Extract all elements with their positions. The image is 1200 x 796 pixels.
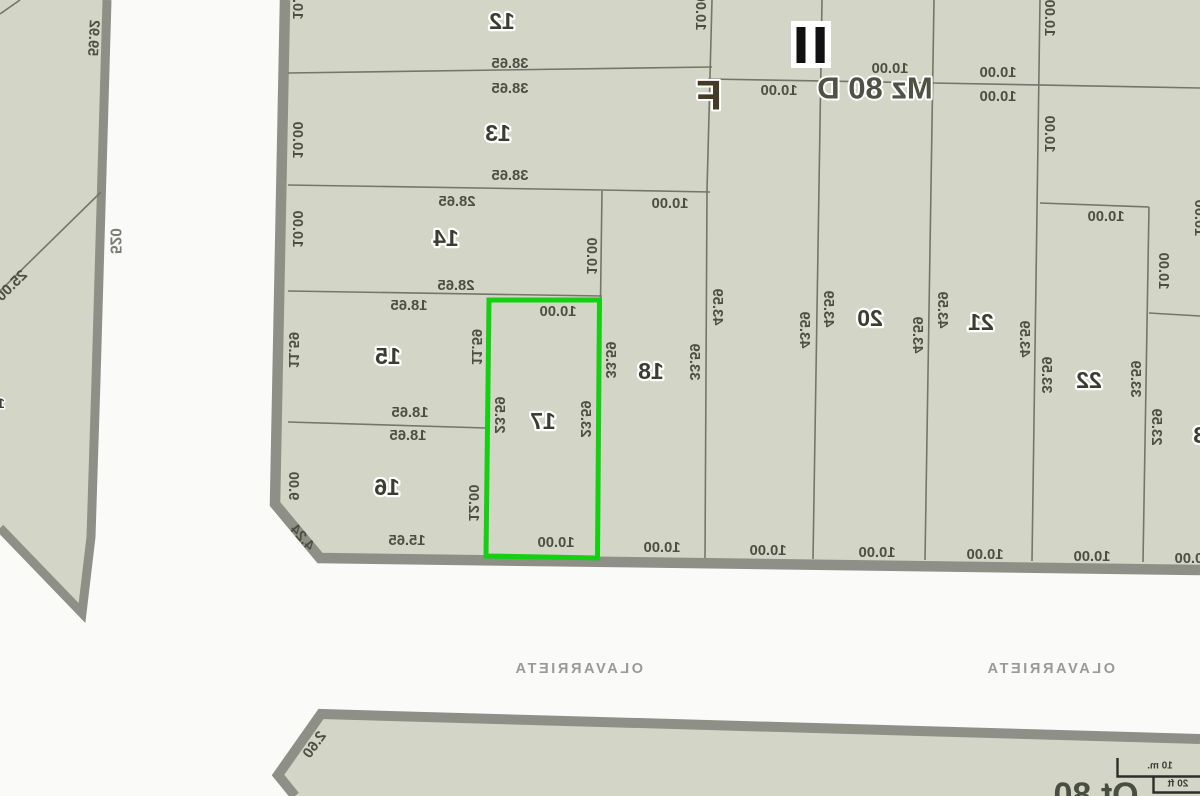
- svg-text:10.00: 10.00: [692, 0, 708, 31]
- svg-text:14: 14: [433, 225, 459, 251]
- svg-text:43.59: 43.59: [820, 290, 836, 327]
- svg-text:43.59: 43.59: [909, 316, 925, 353]
- svg-text:18: 18: [638, 358, 664, 384]
- svg-text:9.00: 9.00: [285, 472, 301, 501]
- svg-text:16: 16: [374, 474, 400, 500]
- svg-text:10.00: 10.00: [643, 540, 680, 556]
- svg-text:23.59: 23.59: [491, 396, 507, 433]
- svg-text:10.00: 10.00: [537, 535, 574, 551]
- svg-text:38.65: 38.65: [491, 81, 528, 97]
- svg-text:23: 23: [1193, 422, 1200, 448]
- svg-text:23.59: 23.59: [1148, 408, 1164, 445]
- svg-text:21: 21: [968, 309, 994, 335]
- svg-text:10.00: 10.00: [858, 545, 895, 561]
- svg-text:10.00: 10.00: [1041, 115, 1057, 152]
- svg-text:18.65: 18.65: [391, 405, 428, 421]
- svg-text:33.59: 33.59: [686, 343, 702, 380]
- svg-text:33.59: 33.59: [1038, 356, 1054, 393]
- svg-text:10.00: 10.00: [1155, 252, 1171, 289]
- svg-text:10.00: 10.00: [1087, 209, 1124, 225]
- svg-text:F: F: [696, 72, 722, 119]
- svg-text:10.00: 10.00: [979, 89, 1016, 105]
- svg-text:520: 520: [107, 228, 124, 254]
- svg-text:10.00: 10.00: [979, 65, 1016, 81]
- svg-text:59.92: 59.92: [84, 19, 102, 56]
- svg-text:28.65: 28.65: [437, 278, 474, 294]
- svg-text:28.65: 28.65: [438, 194, 475, 210]
- svg-text:1: 1: [0, 395, 5, 411]
- svg-text:12.00: 12.00: [465, 484, 481, 521]
- svg-text:10.00: 10.00: [289, 0, 305, 20]
- svg-text:10.00: 10.00: [1073, 549, 1110, 565]
- svg-text:Mz 80 D: Mz 80 D: [817, 71, 932, 106]
- svg-text:33.59: 33.59: [602, 341, 618, 378]
- svg-text:38.65: 38.65: [491, 168, 528, 184]
- svg-text:23.59: 23.59: [577, 400, 593, 437]
- svg-text:10.00: 10.00: [1041, 0, 1057, 37]
- svg-text:11.59: 11.59: [285, 332, 301, 368]
- svg-text:22: 22: [1076, 367, 1102, 393]
- svg-text:33.59: 33.59: [1127, 360, 1143, 397]
- svg-text:10.00: 10.00: [749, 543, 786, 559]
- svg-text:18.65: 18.65: [389, 428, 426, 444]
- svg-text:10.00: 10.00: [583, 237, 599, 274]
- svg-text:15: 15: [375, 343, 401, 369]
- svg-text:OLAVARRIETA: OLAVARRIETA: [985, 661, 1115, 677]
- svg-text:18.65: 18.65: [390, 298, 427, 314]
- svg-text:10.00: 10.00: [760, 83, 797, 99]
- svg-text:10.00: 10.00: [289, 210, 305, 247]
- svg-text:12: 12: [489, 8, 515, 34]
- svg-text:43.59: 43.59: [709, 288, 725, 325]
- svg-text:10.00: 10.00: [1191, 199, 1200, 236]
- svg-text:13: 13: [485, 120, 511, 146]
- svg-text:15.65: 15.65: [388, 533, 425, 549]
- svg-text:Qt 80: Qt 80: [1053, 776, 1138, 796]
- svg-text:11.59: 11.59: [468, 329, 484, 365]
- svg-text:20: 20: [857, 305, 883, 331]
- svg-text:10.00: 10.00: [1174, 551, 1200, 567]
- svg-text:17: 17: [530, 408, 556, 434]
- svg-text:10.00: 10.00: [289, 121, 305, 158]
- svg-text:43.59: 43.59: [1016, 320, 1032, 357]
- svg-text:38.65: 38.65: [491, 56, 528, 72]
- svg-text:43.59: 43.59: [796, 311, 812, 348]
- svg-text:20 ft: 20 ft: [1167, 779, 1188, 790]
- svg-text:10.00: 10.00: [966, 547, 1003, 563]
- svg-text:43.59: 43.59: [934, 291, 950, 328]
- svg-text:10.00: 10.00: [539, 304, 576, 320]
- svg-text:10 m.: 10 m.: [1147, 761, 1173, 772]
- svg-text:OLAVARRIETA: OLAVARRIETA: [513, 661, 643, 677]
- svg-text:10.00: 10.00: [651, 196, 688, 212]
